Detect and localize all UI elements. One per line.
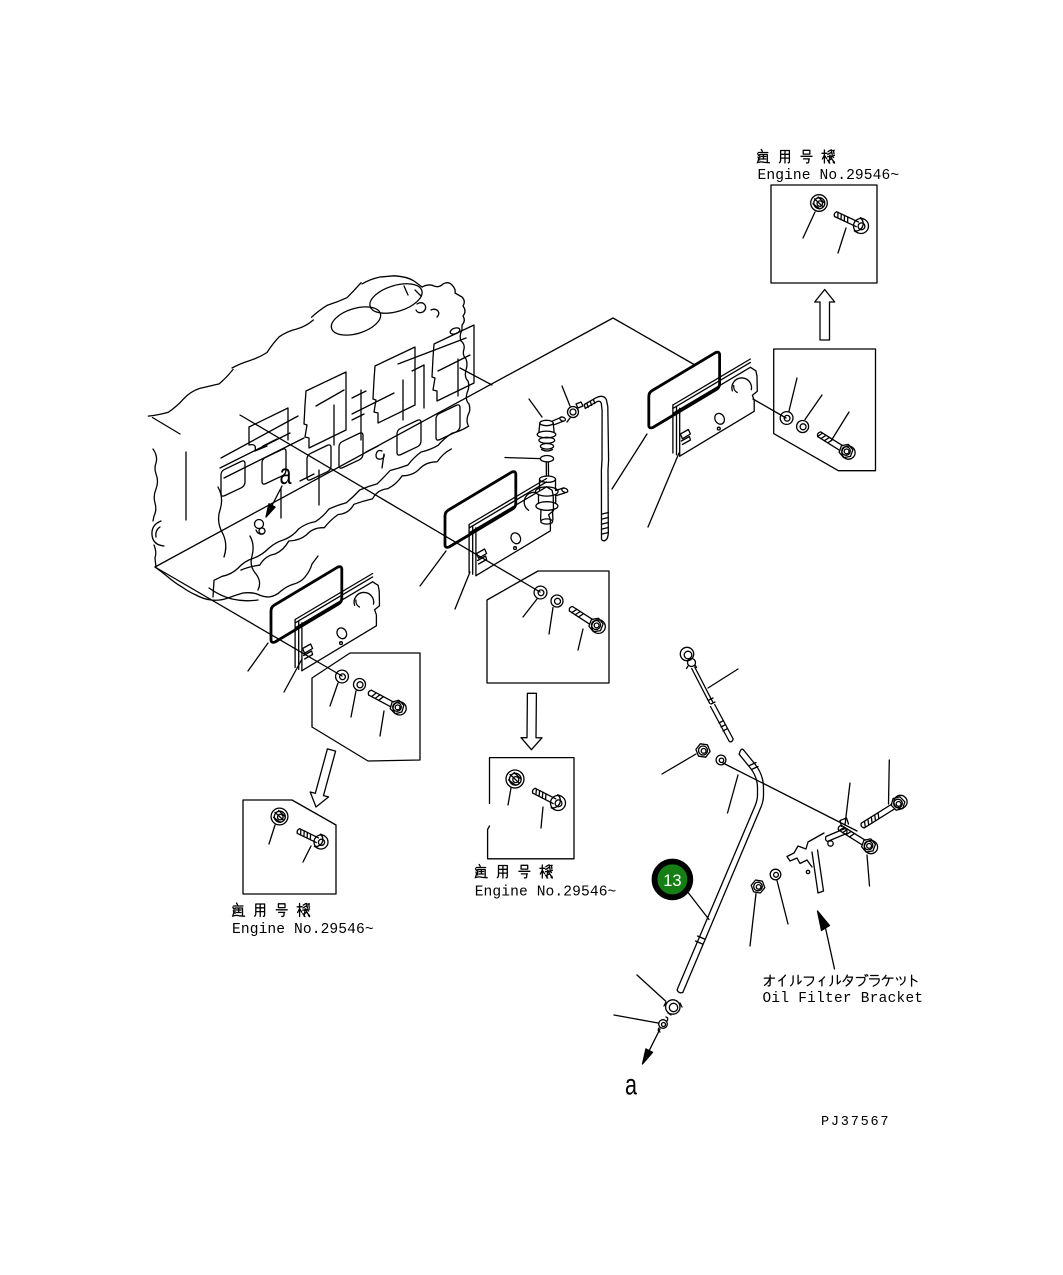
svg-text:Engine No.29546~: Engine No.29546~ [232, 922, 374, 938]
svg-text:a: a [280, 456, 292, 490]
svg-text:13: 13 [663, 872, 681, 890]
svg-text:Engine No.29546~: Engine No.29546~ [475, 885, 617, 901]
svg-text:Engine No.29546~: Engine No.29546~ [758, 168, 900, 184]
svg-text:a: a [625, 1067, 637, 1101]
svg-text:Oil Filter Bracket: Oil Filter Bracket [763, 991, 924, 1007]
svg-text:PJ37567: PJ37567 [821, 1115, 890, 1130]
